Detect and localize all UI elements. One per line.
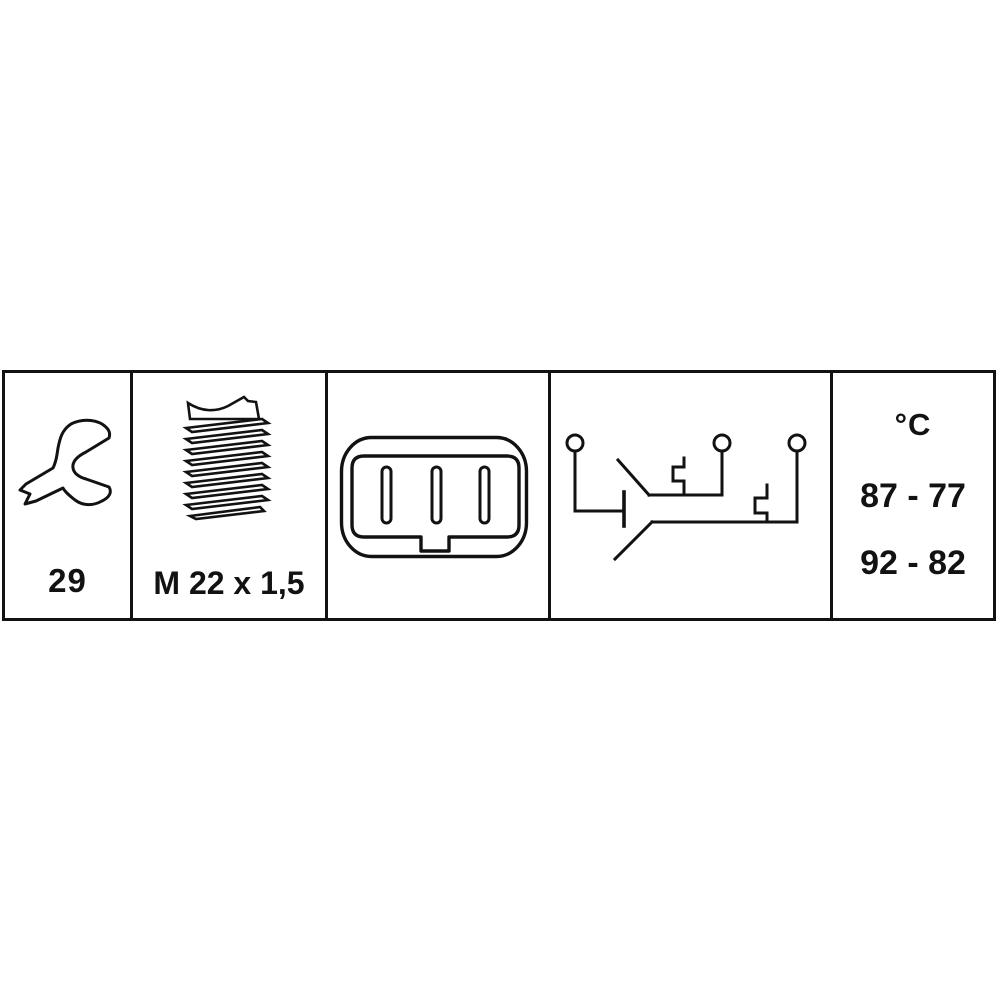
- temperature-range-low: 92 - 82: [833, 546, 993, 580]
- temperature-unit-label: °C: [833, 409, 993, 440]
- panel-thread-spec: M 22 x 1,5: [133, 373, 328, 618]
- open-end-wrench-icon: [13, 418, 121, 506]
- terminal-middle-icon: [714, 435, 730, 451]
- thermo-switch-circuit-icon: [551, 373, 830, 618]
- pictogram-strip: 29 M 22 x 1,5: [2, 370, 996, 621]
- temperature-range-high: 87 - 77: [833, 479, 993, 513]
- panel-circuit: [551, 373, 833, 618]
- panel-connector: [328, 373, 551, 618]
- terminal-left-icon: [567, 435, 583, 451]
- page: { "image": { "type": "auto-part-pictogra…: [0, 0, 1000, 1000]
- panel-wrench-size: 29: [5, 373, 133, 618]
- terminal-right-icon: [789, 435, 805, 451]
- panel-temperature: °C 87 - 77 92 - 82: [833, 373, 993, 618]
- thread-spec-label: M 22 x 1,5: [133, 567, 325, 599]
- three-pin-connector-icon: [339, 435, 529, 559]
- wrench-size-label: 29: [5, 564, 130, 597]
- threaded-stud-icon: [182, 395, 272, 520]
